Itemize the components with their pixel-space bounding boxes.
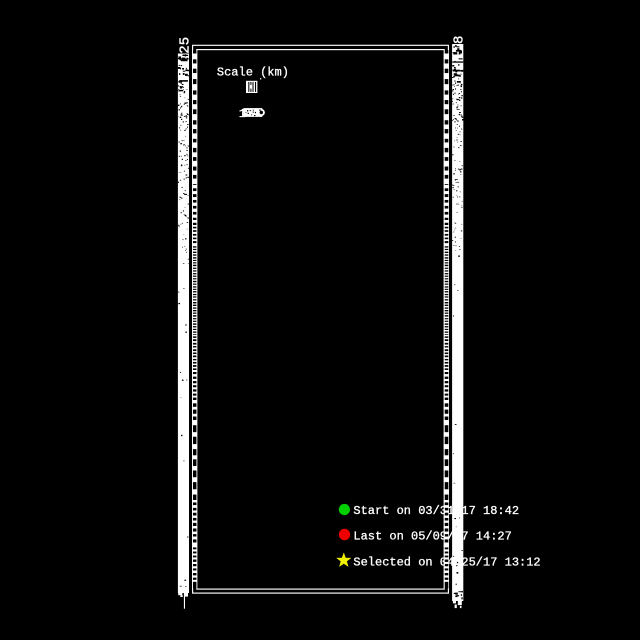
svg-text:Last on 05/09/17 14:27: Last on 05/09/17 14:27: [353, 529, 511, 543]
svg-text:25: 25: [177, 37, 193, 54]
svg-text:Scale (km): Scale (km): [217, 66, 289, 80]
svg-text:Start on 03/31/17 18:42: Start on 03/31/17 18:42: [353, 504, 519, 518]
